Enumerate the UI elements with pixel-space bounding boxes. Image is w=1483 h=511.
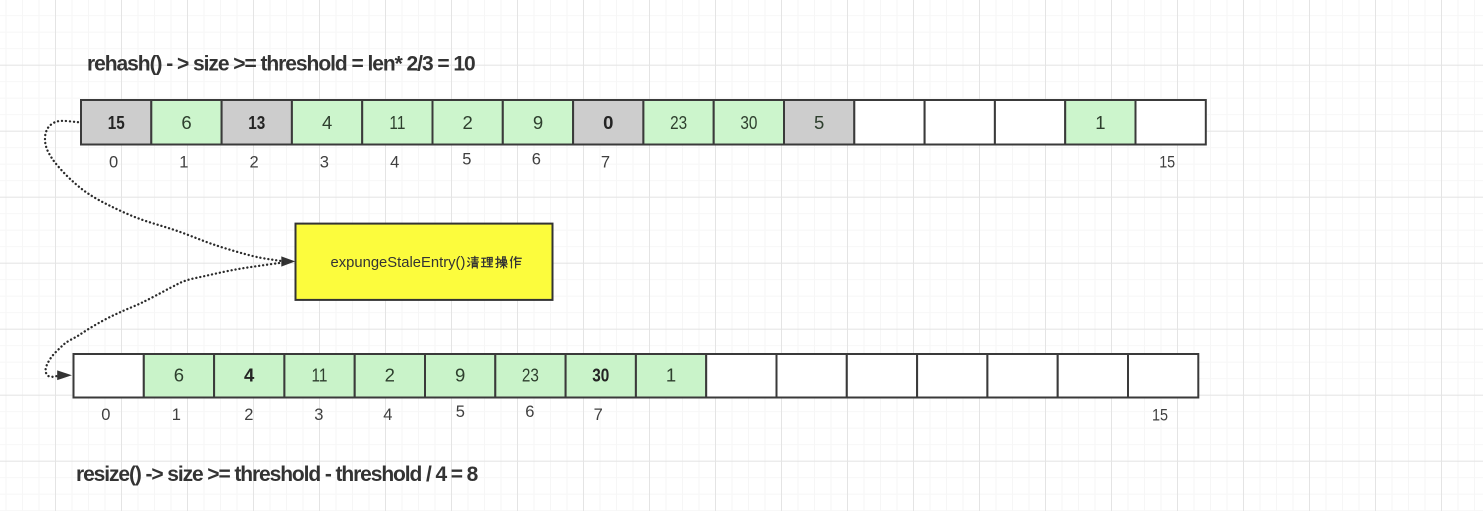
svg-text:7: 7 [594, 406, 603, 424]
svg-text:4: 4 [244, 365, 255, 386]
svg-text:11: 11 [312, 365, 328, 386]
svg-text:6: 6 [181, 112, 191, 133]
svg-text:6: 6 [525, 403, 534, 421]
svg-text:3: 3 [314, 406, 323, 424]
svg-text:5: 5 [462, 151, 471, 169]
svg-text:7: 7 [601, 153, 610, 171]
svg-text:expungeStaleEntry(): expungeStaleEntry() [331, 255, 466, 271]
svg-text:30: 30 [592, 365, 609, 386]
svg-text:0: 0 [109, 153, 118, 171]
svg-text:23: 23 [522, 365, 539, 386]
svg-text:4: 4 [390, 153, 399, 171]
svg-text:2: 2 [463, 112, 473, 133]
svg-text:30: 30 [740, 112, 757, 133]
svg-text:5: 5 [814, 112, 824, 133]
svg-text:13: 13 [248, 112, 265, 133]
svg-text:0: 0 [101, 406, 110, 424]
svg-text:1: 1 [179, 153, 188, 171]
svg-text:1: 1 [172, 406, 181, 424]
svg-text:2: 2 [250, 153, 259, 171]
svg-text:9: 9 [533, 112, 543, 133]
svg-text:2: 2 [385, 365, 395, 386]
svg-text:4: 4 [322, 112, 332, 133]
svg-text:9: 9 [455, 365, 465, 386]
svg-text:15: 15 [1159, 154, 1175, 172]
svg-text:11: 11 [389, 112, 405, 133]
svg-text:23: 23 [670, 112, 687, 133]
svg-text:15: 15 [1152, 407, 1168, 425]
svg-text:6: 6 [532, 151, 541, 169]
svg-text:1: 1 [666, 365, 676, 386]
svg-text:rehash() - > size >= threshold: rehash() - > size >= threshold = len* 2/… [87, 53, 475, 76]
svg-text:1: 1 [1095, 112, 1105, 133]
svg-text:15: 15 [108, 112, 125, 133]
svg-text:0: 0 [603, 112, 613, 133]
svg-text:2: 2 [244, 406, 253, 424]
svg-text:5: 5 [456, 403, 465, 421]
svg-text:6: 6 [174, 365, 184, 386]
svg-text:resize() -> size >= threshold: resize() -> size >= threshold - threshol… [76, 463, 479, 486]
svg-text:3: 3 [320, 153, 329, 171]
svg-text:4: 4 [383, 406, 392, 424]
